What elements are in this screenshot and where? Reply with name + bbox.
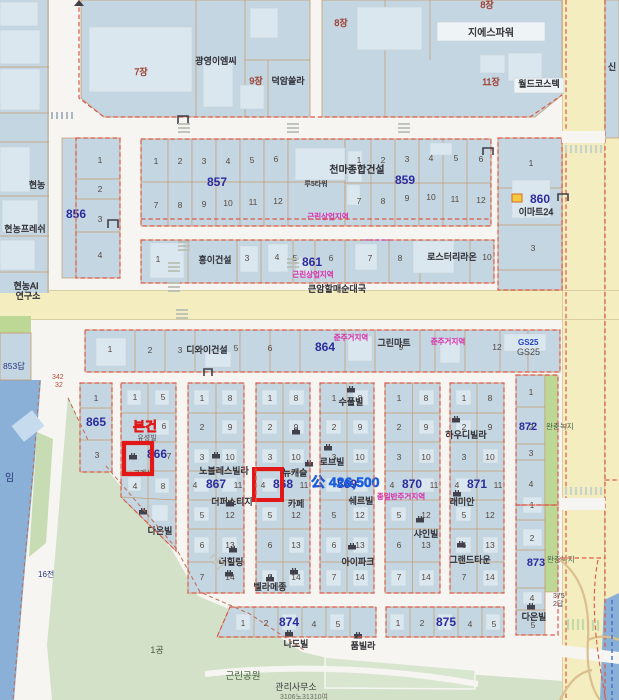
svg-text:342: 342 xyxy=(52,374,64,381)
svg-text:10: 10 xyxy=(291,452,301,462)
svg-text:公 426,500: 公 426,500 xyxy=(311,474,380,490)
svg-text:7: 7 xyxy=(368,253,373,263)
svg-text:2: 2 xyxy=(268,422,273,432)
svg-text:10: 10 xyxy=(482,252,492,262)
svg-text:홍이건설: 홍이건설 xyxy=(198,254,231,265)
svg-text:1: 1 xyxy=(241,618,246,628)
svg-text:6: 6 xyxy=(397,540,402,550)
svg-text:5: 5 xyxy=(250,155,255,165)
svg-text:8: 8 xyxy=(294,393,299,403)
svg-text:2: 2 xyxy=(200,422,205,432)
svg-text:GS25: GS25 xyxy=(517,347,540,357)
svg-text:8: 8 xyxy=(178,200,183,210)
svg-text:노블레스빌라: 노블레스빌라 xyxy=(199,466,249,476)
svg-text:11: 11 xyxy=(300,480,309,490)
svg-text:벨라메종: 벨라메종 xyxy=(253,582,286,592)
svg-text:로브빌: 로브빌 xyxy=(320,457,345,467)
svg-text:874: 874 xyxy=(279,615,299,629)
svg-text:4: 4 xyxy=(530,593,535,603)
svg-text:3: 3 xyxy=(245,253,250,263)
svg-text:3: 3 xyxy=(397,452,402,462)
svg-text:10: 10 xyxy=(421,452,431,462)
svg-text:준주거지역: 준주거지역 xyxy=(334,332,369,342)
svg-text:860: 860 xyxy=(530,192,550,206)
svg-text:13: 13 xyxy=(291,540,301,550)
svg-text:4: 4 xyxy=(468,619,473,629)
svg-text:1: 1 xyxy=(529,387,534,397)
svg-text:6: 6 xyxy=(268,540,273,550)
svg-text:1: 1 xyxy=(462,393,467,403)
svg-text:1: 1 xyxy=(396,618,401,628)
svg-text:853답: 853답 xyxy=(3,361,25,371)
svg-text:3: 3 xyxy=(531,243,536,253)
svg-text:9: 9 xyxy=(202,199,207,209)
svg-text:5: 5 xyxy=(397,510,402,520)
svg-text:쉐르빌: 쉐르빌 xyxy=(349,496,374,506)
svg-text:8: 8 xyxy=(228,393,233,403)
svg-text:5: 5 xyxy=(492,619,497,629)
svg-text:11: 11 xyxy=(451,194,460,204)
svg-text:1: 1 xyxy=(268,393,273,403)
svg-text:864: 864 xyxy=(315,340,335,354)
svg-text:천마종합건설: 천마종합건설 xyxy=(329,164,384,176)
svg-text:10: 10 xyxy=(426,192,436,202)
svg-text:8: 8 xyxy=(424,393,429,403)
svg-text:11: 11 xyxy=(430,480,439,490)
svg-text:큰암할매순대국: 큰암할매순대국 xyxy=(308,283,366,294)
svg-text:14: 14 xyxy=(485,572,495,582)
svg-text:4: 4 xyxy=(529,479,534,489)
svg-text:3: 3 xyxy=(95,450,100,460)
svg-text:11: 11 xyxy=(249,197,258,207)
svg-text:13: 13 xyxy=(485,540,495,550)
svg-text:9: 9 xyxy=(399,342,404,352)
svg-text:9: 9 xyxy=(228,422,233,432)
svg-text:뉴캐슬: 뉴캐슬 xyxy=(283,468,308,478)
svg-text:10: 10 xyxy=(223,198,233,208)
svg-text:2: 2 xyxy=(381,155,386,165)
svg-text:3: 3 xyxy=(462,452,467,462)
svg-text:873: 873 xyxy=(527,557,545,569)
svg-text:11장: 11장 xyxy=(482,77,500,87)
svg-text:9: 9 xyxy=(405,193,410,203)
svg-text:9: 9 xyxy=(424,422,429,432)
svg-text:하우디빌라: 하우디빌라 xyxy=(445,430,487,440)
svg-text:12: 12 xyxy=(355,510,365,520)
svg-text:연구소: 연구소 xyxy=(16,291,41,301)
svg-text:10: 10 xyxy=(355,452,365,462)
svg-text:875: 875 xyxy=(436,615,456,629)
svg-text:월드코스텍: 월드코스텍 xyxy=(518,78,559,89)
svg-text:871: 871 xyxy=(467,477,487,491)
svg-text:4: 4 xyxy=(275,252,280,262)
svg-text:5: 5 xyxy=(293,253,298,263)
svg-text:7: 7 xyxy=(200,572,205,582)
svg-text:근린공원: 근린공원 xyxy=(226,671,261,682)
svg-text:디와이건설: 디와이건설 xyxy=(186,344,227,355)
svg-text:1: 1 xyxy=(357,155,362,165)
svg-text:12: 12 xyxy=(485,510,495,520)
svg-text:1: 1 xyxy=(332,393,337,403)
svg-text:865: 865 xyxy=(86,415,106,429)
svg-text:카페: 카페 xyxy=(288,499,305,509)
svg-text:6: 6 xyxy=(274,154,279,164)
svg-text:11: 11 xyxy=(234,480,243,490)
svg-text:1: 1 xyxy=(133,392,138,402)
svg-text:6: 6 xyxy=(162,421,167,431)
svg-text:9: 9 xyxy=(358,422,363,432)
svg-text:3106노31310여: 3106노31310여 xyxy=(280,692,328,700)
svg-text:2: 2 xyxy=(530,533,535,543)
svg-text:광영이엠씨: 광영이엠씨 xyxy=(195,55,236,66)
svg-text:그랜드타운: 그랜드타운 xyxy=(449,555,490,565)
svg-text:4: 4 xyxy=(390,480,395,490)
svg-text:4: 4 xyxy=(312,619,317,629)
svg-text:이마트24: 이마트24 xyxy=(519,207,554,217)
svg-text:10: 10 xyxy=(485,452,495,462)
svg-text:5: 5 xyxy=(268,510,273,520)
svg-text:11: 11 xyxy=(494,480,503,490)
svg-text:6: 6 xyxy=(329,253,334,263)
svg-text:현농: 현농 xyxy=(29,180,46,190)
svg-text:7: 7 xyxy=(332,572,337,582)
svg-text:현농AI: 현농AI xyxy=(13,281,38,291)
svg-text:12: 12 xyxy=(492,342,502,352)
svg-text:10: 10 xyxy=(225,452,235,462)
svg-text:7: 7 xyxy=(154,200,159,210)
svg-text:859: 859 xyxy=(395,173,415,187)
svg-text:3: 3 xyxy=(268,452,273,462)
svg-text:1공: 1공 xyxy=(150,645,163,655)
svg-text:7장: 7장 xyxy=(134,67,147,77)
svg-text:8: 8 xyxy=(381,196,386,206)
svg-text:나도빌: 나도빌 xyxy=(284,639,309,649)
svg-text:5: 5 xyxy=(332,510,337,520)
svg-text:현농프레쉬: 현농프레쉬 xyxy=(4,224,45,234)
svg-text:12: 12 xyxy=(225,510,235,520)
svg-text:2: 2 xyxy=(98,184,103,194)
svg-text:7: 7 xyxy=(462,572,467,582)
svg-text:GS25: GS25 xyxy=(518,338,539,347)
svg-text:3: 3 xyxy=(98,214,103,224)
svg-text:4: 4 xyxy=(261,480,266,490)
svg-text:9: 9 xyxy=(488,422,493,432)
svg-text:2: 2 xyxy=(420,618,425,628)
svg-text:5: 5 xyxy=(462,510,467,520)
svg-text:근린상업지역: 근린상업지역 xyxy=(292,269,333,279)
svg-text:1: 1 xyxy=(529,158,534,168)
svg-text:다온빌: 다온빌 xyxy=(522,612,547,622)
svg-text:5: 5 xyxy=(234,343,239,353)
svg-text:7: 7 xyxy=(397,572,402,582)
svg-text:품빌라: 품빌라 xyxy=(351,641,377,651)
svg-text:임: 임 xyxy=(5,471,14,484)
svg-text:1: 1 xyxy=(154,156,159,166)
svg-text:2: 2 xyxy=(148,345,153,355)
svg-text:5: 5 xyxy=(200,510,205,520)
svg-text:8: 8 xyxy=(398,253,403,263)
svg-text:375: 375 xyxy=(553,593,565,600)
svg-text:3: 3 xyxy=(405,154,410,164)
svg-text:유성빌: 유성빌 xyxy=(137,433,156,442)
svg-text:4: 4 xyxy=(193,480,198,490)
svg-text:5: 5 xyxy=(161,392,166,402)
svg-text:14: 14 xyxy=(421,572,431,582)
svg-text:32: 32 xyxy=(55,382,63,389)
svg-text:덕암쏠라: 덕암쏠라 xyxy=(271,75,305,86)
svg-text:872: 872 xyxy=(519,421,537,433)
svg-text:준주거지역: 준주거지역 xyxy=(431,336,466,346)
svg-text:3: 3 xyxy=(529,448,534,458)
svg-text:4: 4 xyxy=(455,480,460,490)
svg-text:5: 5 xyxy=(454,153,459,163)
svg-text:1: 1 xyxy=(108,344,113,354)
svg-text:861: 861 xyxy=(302,255,322,269)
svg-text:관리사무소: 관리사무소 xyxy=(275,682,316,692)
svg-text:6: 6 xyxy=(200,540,205,550)
svg-text:완충녹지: 완충녹지 xyxy=(546,422,574,431)
svg-text:그린마트: 그린마트 xyxy=(377,338,410,348)
svg-text:6: 6 xyxy=(479,154,484,164)
svg-text:13: 13 xyxy=(421,540,431,550)
svg-text:8장: 8장 xyxy=(334,18,347,28)
svg-text:2: 2 xyxy=(397,422,402,432)
svg-text:신: 신 xyxy=(608,62,616,72)
svg-text:지에스파워: 지에스파워 xyxy=(468,26,514,39)
svg-text:6: 6 xyxy=(268,343,273,353)
svg-text:래미안: 래미안 xyxy=(450,497,475,507)
svg-text:수풀빌: 수풀빌 xyxy=(339,397,364,407)
svg-text:12: 12 xyxy=(291,510,301,520)
svg-text:12: 12 xyxy=(273,196,283,206)
svg-text:9장: 9장 xyxy=(249,76,262,86)
svg-text:본건: 본건 xyxy=(133,419,157,434)
svg-text:8: 8 xyxy=(161,481,166,491)
svg-text:870: 870 xyxy=(402,477,422,491)
svg-text:2: 2 xyxy=(332,422,337,432)
svg-text:14: 14 xyxy=(355,572,365,582)
svg-text:종일반주거지역: 종일반주거지역 xyxy=(377,491,425,501)
svg-text:루5타워: 루5타워 xyxy=(304,179,327,188)
svg-text:샤인빌: 샤인빌 xyxy=(414,529,439,539)
svg-text:로스터리라온: 로스터리라온 xyxy=(427,252,477,262)
svg-text:4: 4 xyxy=(98,250,103,260)
svg-text:4: 4 xyxy=(133,481,138,491)
svg-text:1: 1 xyxy=(397,393,402,403)
svg-text:1: 1 xyxy=(98,155,103,165)
svg-text:7: 7 xyxy=(167,451,172,461)
svg-text:1: 1 xyxy=(94,393,99,403)
svg-text:1: 1 xyxy=(200,393,205,403)
svg-text:3: 3 xyxy=(178,345,183,355)
svg-text:3: 3 xyxy=(202,156,207,166)
svg-text:아이파크: 아이파크 xyxy=(341,557,374,567)
svg-text:1: 1 xyxy=(156,254,161,264)
svg-text:3: 3 xyxy=(200,452,205,462)
svg-text:4: 4 xyxy=(226,156,231,166)
svg-text:8: 8 xyxy=(488,393,493,403)
svg-text:857: 857 xyxy=(207,175,227,189)
svg-text:16전: 16전 xyxy=(38,569,54,579)
svg-text:4: 4 xyxy=(429,153,434,163)
svg-text:13: 13 xyxy=(355,540,365,550)
svg-text:867: 867 xyxy=(206,477,226,491)
svg-text:2: 2 xyxy=(178,156,183,166)
svg-text:5: 5 xyxy=(336,619,341,629)
svg-text:6: 6 xyxy=(332,540,337,550)
svg-text:12: 12 xyxy=(476,195,486,205)
svg-text:7: 7 xyxy=(357,196,362,206)
svg-text:8장: 8장 xyxy=(480,0,493,10)
